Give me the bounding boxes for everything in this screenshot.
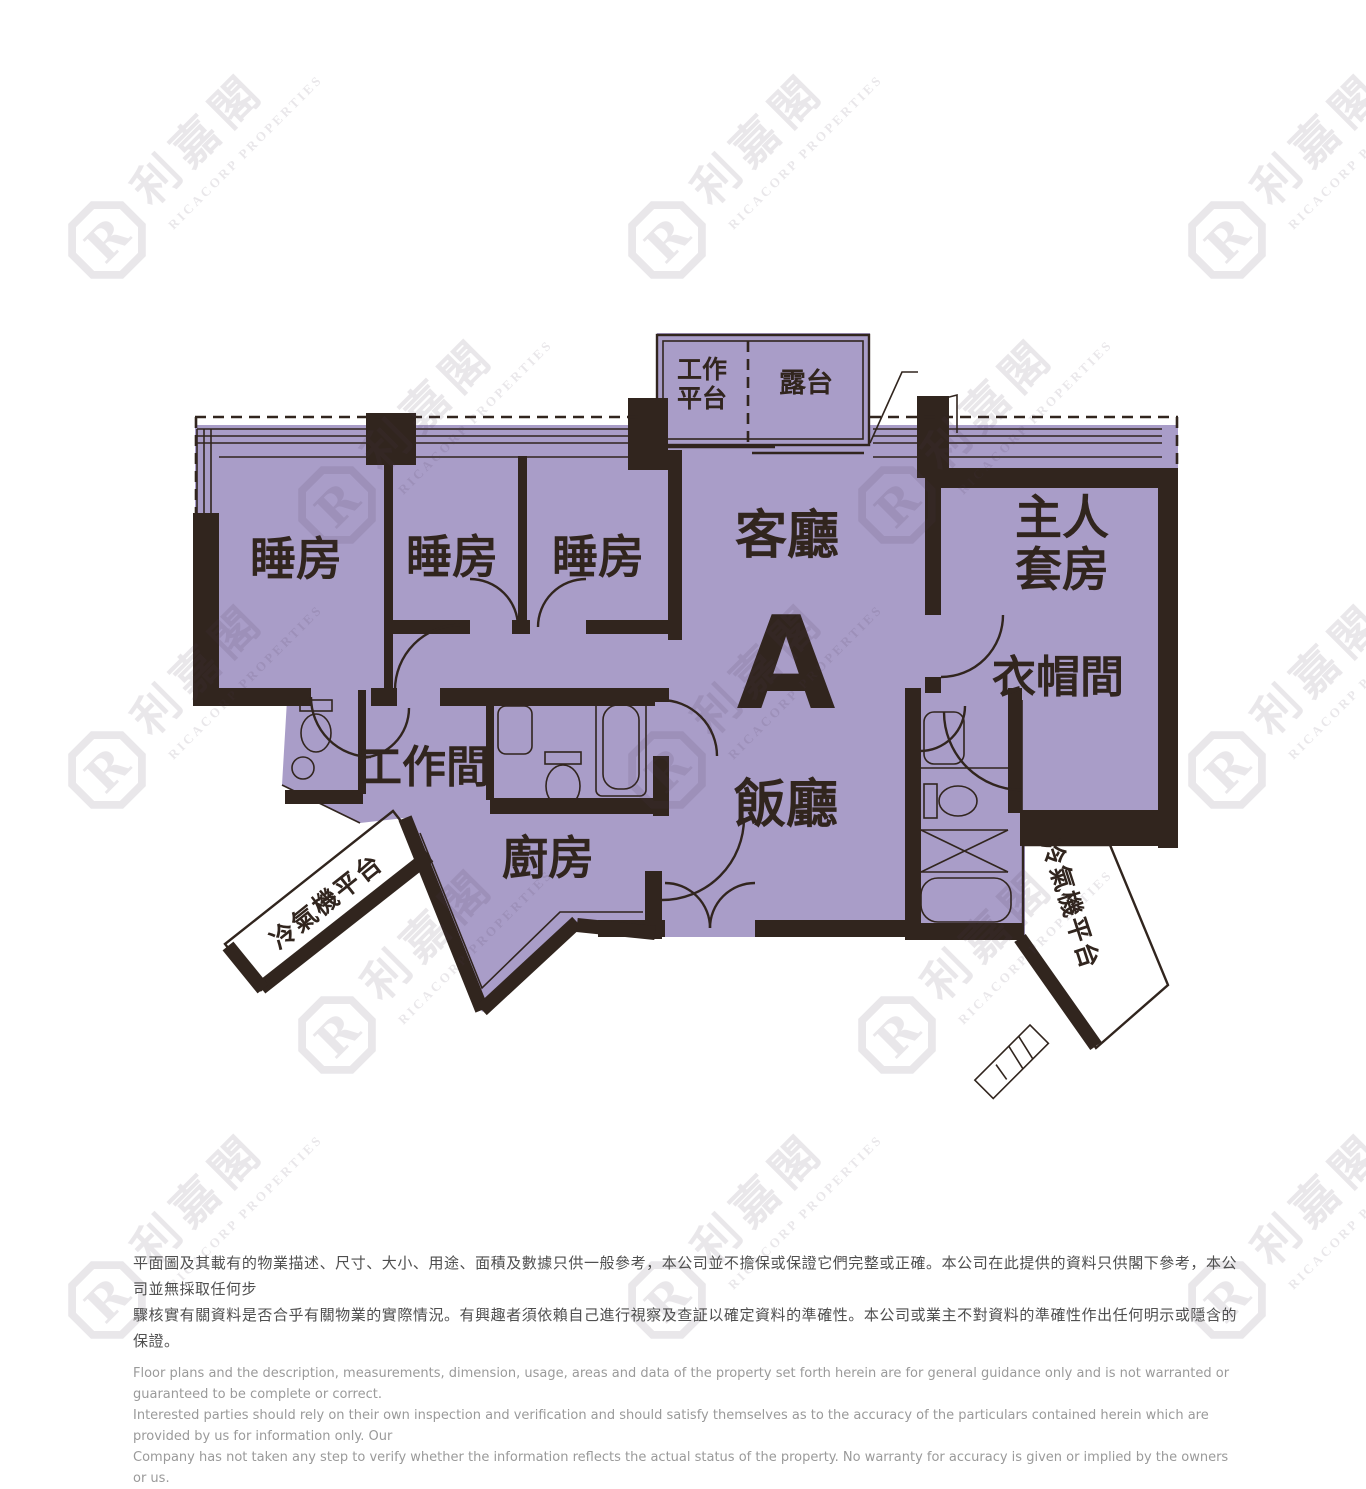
label-balcony: 露台 [779,367,833,399]
disclaimer-english-line1: Floor plans and the description, measure… [133,1363,1237,1405]
label-bedroom-1: 睡房 [250,532,342,586]
label-ac-platform-right: 冷氣機平台 [1036,836,1105,973]
label-workroom: 工作間 [358,742,490,793]
label-master-suite-line2: 套房 [1015,543,1109,598]
disclaimer-english-line2: Interested parties should rely on their … [133,1405,1237,1447]
disclaimer-chinese-line2: 驟核實有關資料是否合乎有關物業的實際情況。有興趣者須依賴自己進行視察及查証以確定… [133,1302,1237,1354]
label-bedroom-2: 睡房 [406,530,498,584]
disclaimer-english-line3: Company has not taken any step to verify… [133,1447,1237,1489]
ladder-hatch [975,1025,1049,1099]
unit-letter: A [736,590,835,739]
label-utility-line2: 平台 [677,384,727,413]
label-dining-room: 飯廳 [734,775,838,835]
label-closet: 衣帽間 [992,652,1124,703]
page-root: { "floorplan": { "unit_letter": "A", "ro… [0,0,1366,1366]
floorplan-svg: 睡房 睡房 睡房 客廳 A 飯廳 主人 套房 衣帽間 工作間 廚房 露台 工作 … [0,0,1366,1366]
disclaimer: 平面圖及其載有的物業描述、尺寸、大小、用途、面積及數據只供一般參考，本公司並不擔… [133,1250,1237,1489]
label-master-suite-line1: 主人 [1015,491,1109,546]
label-living-room: 客廳 [735,506,839,566]
disclaimer-chinese-line1: 平面圖及其載有的物業描述、尺寸、大小、用途、面積及數據只供一般參考，本公司並不擔… [133,1250,1237,1302]
label-kitchen: 廚房 [502,831,594,885]
label-utility-line1: 工作 [677,355,727,384]
label-bedroom-3: 睡房 [552,530,644,584]
